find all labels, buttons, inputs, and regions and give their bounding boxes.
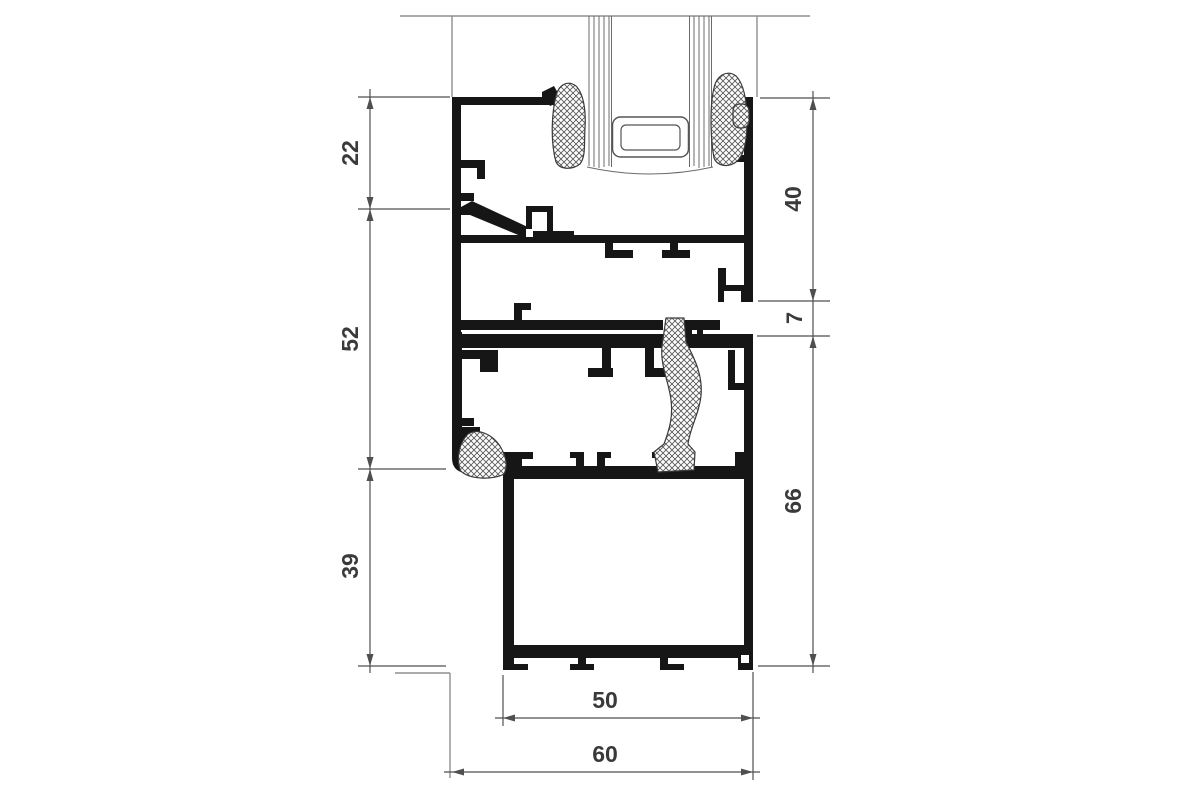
sash-left-wall [452,97,461,332]
glass-spacer-inner [621,125,680,150]
gasket-bottom-left [458,432,506,478]
sash-mid-bar [452,235,753,243]
dim-label-50: 50 [592,687,618,713]
dim-label-52: 52 [337,326,363,352]
block-top-stub-rightend [735,452,744,467]
frame-left-stub [462,350,498,359]
glass-break-curve [587,167,713,174]
profile-body [452,86,753,670]
block-bottom-bar [503,645,753,658]
sash-left-notch [461,160,485,168]
sash-left-notch-stub [477,168,485,179]
block-top-slot-mid [570,452,611,468]
block-top-bar [503,466,753,479]
right-dimension-chain [757,91,830,673]
block-top-stub-left-cap [514,452,533,459]
dim-label-66: 66 [780,488,806,514]
dimension-lines [358,89,830,780]
dim-label-22: 22 [337,140,363,166]
frame-lip-stub-b [697,326,703,335]
frame-inner-webs [588,348,673,377]
dim-label-7: 7 [782,312,807,324]
frame-top-bar-left [452,334,663,348]
drawing-canvas: 22 52 39 40 7 66 50 60 [0,0,1200,800]
glass-pane-right [690,16,712,168]
technical-section-drawing: 22 52 39 40 7 66 50 60 [0,0,1200,800]
frame-right-channel-b [728,383,750,390]
gasket-clamped-bead [733,104,749,128]
gasket-top-left [552,83,585,168]
frame-left-low-notch [462,418,474,426]
sash-bottom-bar-left [452,320,663,330]
dim-label-39: 39 [337,553,363,579]
frame-profile [452,326,753,670]
frame-top-bar-right [683,334,753,348]
frame-left-stub-leg [480,359,498,372]
glazing-unit [587,16,713,174]
glass-pane-left [589,16,612,168]
left-dimension-chain [358,89,450,673]
frame-left-wall [452,332,462,430]
profile-cutouts [526,212,749,663]
sash-profile [452,86,753,332]
sash-inner-webs [514,243,690,320]
block-left-wall [503,452,514,667]
dim-label-60: 60 [592,741,618,767]
dim-label-40: 40 [780,186,806,212]
bead-foot-stub [461,193,474,201]
